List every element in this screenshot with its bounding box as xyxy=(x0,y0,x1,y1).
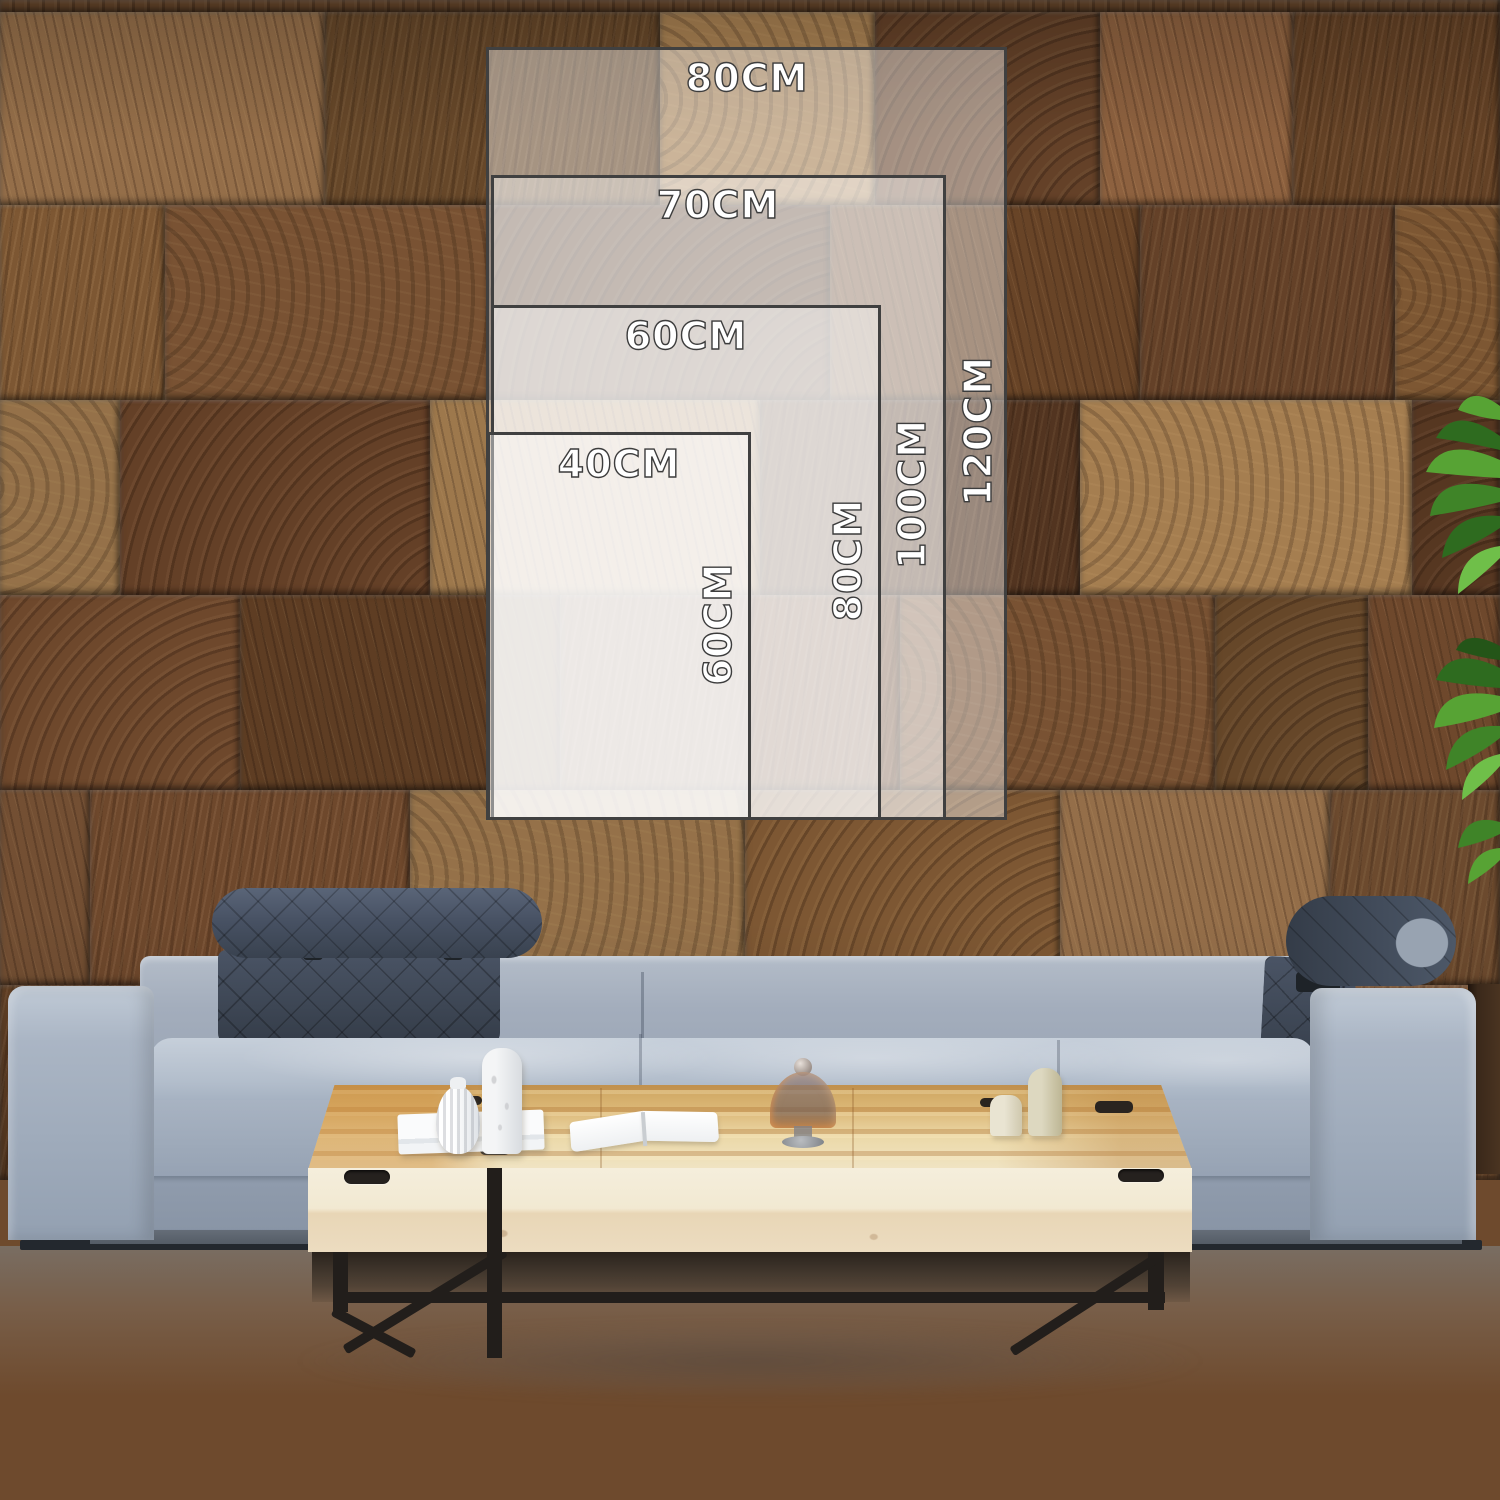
height-label-120cm: 120CM xyxy=(956,356,1000,506)
headrest-left-roll xyxy=(212,888,542,958)
cloche-foot xyxy=(782,1136,824,1148)
candle xyxy=(1028,1068,1062,1136)
candle xyxy=(990,1095,1022,1136)
tabletop-seam xyxy=(852,1088,854,1168)
plant-leaves xyxy=(1406,376,1500,896)
headrest-left-cushion xyxy=(218,950,500,1045)
sofa-armrest-right xyxy=(1310,988,1476,1240)
width-label-60cm: 60CM xyxy=(625,314,748,358)
height-label-100cm: 100CM xyxy=(890,419,934,569)
gourd-vase xyxy=(436,1086,480,1154)
headrest-right-roll xyxy=(1286,896,1456,986)
tabletop-slot xyxy=(1095,1101,1133,1113)
table-stretcher-bar xyxy=(340,1292,1165,1303)
width-label-40cm: 40CM xyxy=(558,442,681,486)
width-label-80cm: 80CM xyxy=(686,56,809,100)
book-page xyxy=(569,1111,644,1153)
tall-vase xyxy=(482,1048,522,1154)
width-label-70cm: 70CM xyxy=(657,183,780,227)
sofa-armrest-left xyxy=(8,986,154,1240)
drawer-handle xyxy=(344,1170,390,1184)
table-front-face xyxy=(308,1168,1192,1252)
table-leg-front xyxy=(487,1168,502,1358)
drawer-handle xyxy=(1118,1169,1164,1182)
book-page xyxy=(643,1111,719,1142)
table-shadow xyxy=(295,1322,1205,1400)
height-label-80cm: 80CM xyxy=(826,499,870,622)
height-label-60cm: 60CM xyxy=(696,563,740,686)
size-chart-scene: 80CM 70CM 60CM 40CM 120CM 100CM 80CM 60C… xyxy=(0,0,1500,1500)
